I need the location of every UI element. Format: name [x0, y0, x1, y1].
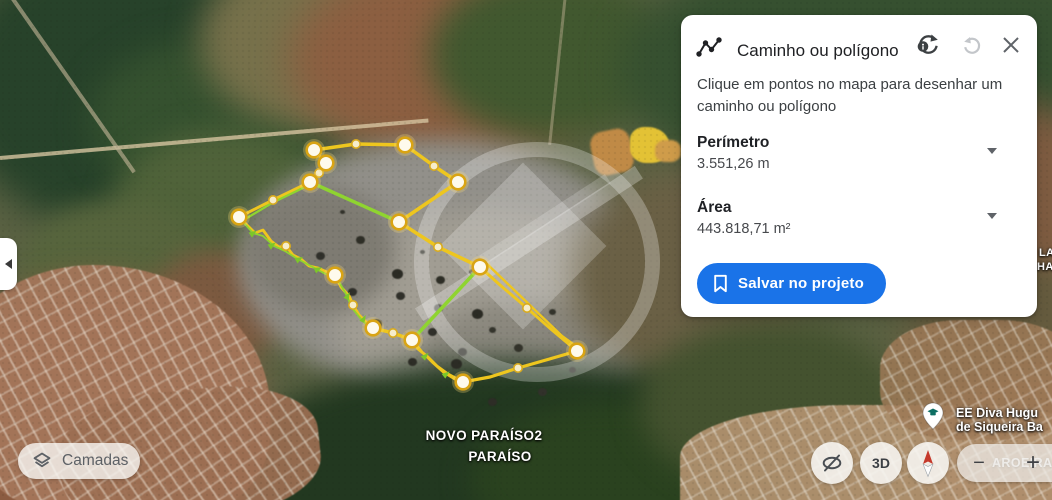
polygon-vertex[interactable] [392, 215, 407, 230]
measure-panel: Caminho ou polígono Clique em pontos no … [681, 15, 1037, 317]
area-caret-down-icon[interactable] [987, 213, 997, 219]
undo-icon[interactable] [962, 35, 984, 57]
polygon-vertex[interactable] [319, 156, 334, 171]
polygon-vertex[interactable] [398, 138, 413, 153]
save-button-label: Salvar no projeto [738, 275, 864, 292]
chevron-left-icon [5, 259, 12, 269]
polygon-vertex[interactable] [456, 375, 471, 390]
polygon-midpoint[interactable] [514, 364, 522, 372]
polygon-midpoint[interactable] [430, 162, 438, 170]
polygon-midpoint[interactable] [282, 242, 290, 250]
compass-button[interactable] [907, 442, 949, 484]
polygon-midpoint[interactable] [269, 196, 277, 204]
polygon-midpoint[interactable] [349, 301, 357, 309]
polygon-vertex[interactable] [570, 344, 585, 359]
perimeter-caret-down-icon[interactable] [987, 148, 997, 154]
polygon-midpoint[interactable] [352, 140, 360, 148]
layers-icon [31, 450, 53, 472]
school-pin-icon[interactable] [922, 402, 944, 430]
panel-title: Caminho ou polígono [737, 41, 899, 61]
zoom-in-button[interactable]: + [1011, 449, 1052, 477]
zoom-controls[interactable]: − + [957, 444, 1052, 482]
3d-label: 3D [872, 455, 890, 471]
eye-off-icon [820, 451, 844, 475]
perimeter-value: 3.551,26 m [697, 156, 770, 172]
polygon-midpoint[interactable] [523, 304, 531, 312]
perimeter-label: Perímetro [697, 134, 769, 152]
panel-instruction: Clique em pontos no mapa para desenhar u… [697, 74, 1003, 117]
layers-button[interactable]: Camadas [18, 443, 140, 479]
measurement-edge [486, 263, 580, 349]
polygon-vertex[interactable] [473, 260, 488, 275]
bookmark-icon [713, 274, 728, 293]
area-label: Área [697, 199, 731, 217]
redo-icon[interactable] [915, 32, 941, 58]
polygon-vertex[interactable] [328, 268, 343, 283]
measurement-edge [310, 182, 399, 222]
polygon-midpoint[interactable] [434, 243, 442, 251]
compass-icon [907, 442, 949, 484]
polygon-vertex[interactable] [451, 175, 466, 190]
3d-toggle-button[interactable]: 3D [860, 442, 902, 484]
polygon-vertex[interactable] [232, 210, 247, 225]
area-value: 443.818,71 m² [697, 221, 791, 237]
zoom-out-button[interactable]: − [957, 452, 1001, 475]
polygon-vertex[interactable] [366, 321, 381, 336]
measurement-edge [412, 267, 480, 340]
google-earth-app: NOVO PARAÍSO2PARAÍSOAROEIRALAHAR EE Diva… [0, 0, 1052, 500]
sidebar-collapse-tab[interactable] [0, 238, 17, 290]
polygon-vertex[interactable] [303, 175, 318, 190]
close-icon[interactable] [1001, 35, 1021, 55]
path-polygon-icon [695, 33, 723, 61]
hide-ui-button[interactable] [811, 442, 853, 484]
layers-label: Camadas [62, 452, 128, 470]
poi-label: EE Diva Hugu de Siqueira Ba [956, 407, 1043, 434]
save-to-project-button[interactable]: Salvar no projeto [697, 263, 886, 304]
polygon-vertex[interactable] [405, 333, 420, 348]
polygon-midpoint[interactable] [389, 329, 397, 337]
